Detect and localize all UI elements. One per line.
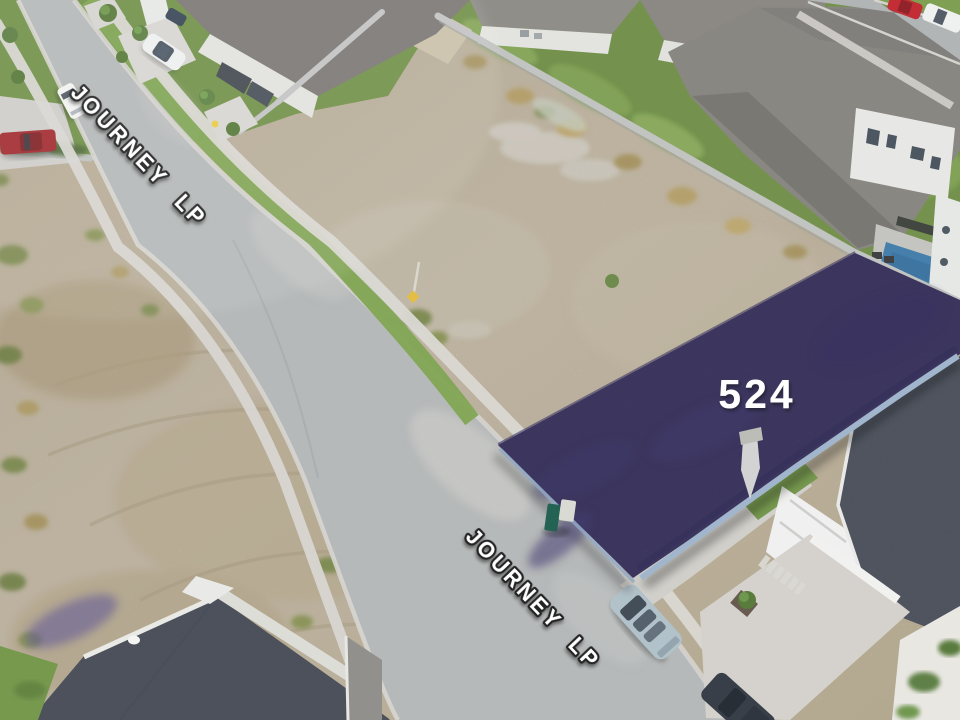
aerial-listing-photo: 524 JOURNEY LP JOURNEY LP <box>0 0 960 720</box>
haze <box>0 0 960 720</box>
scene-svg: 524 JOURNEY LP JOURNEY LP <box>0 0 960 720</box>
